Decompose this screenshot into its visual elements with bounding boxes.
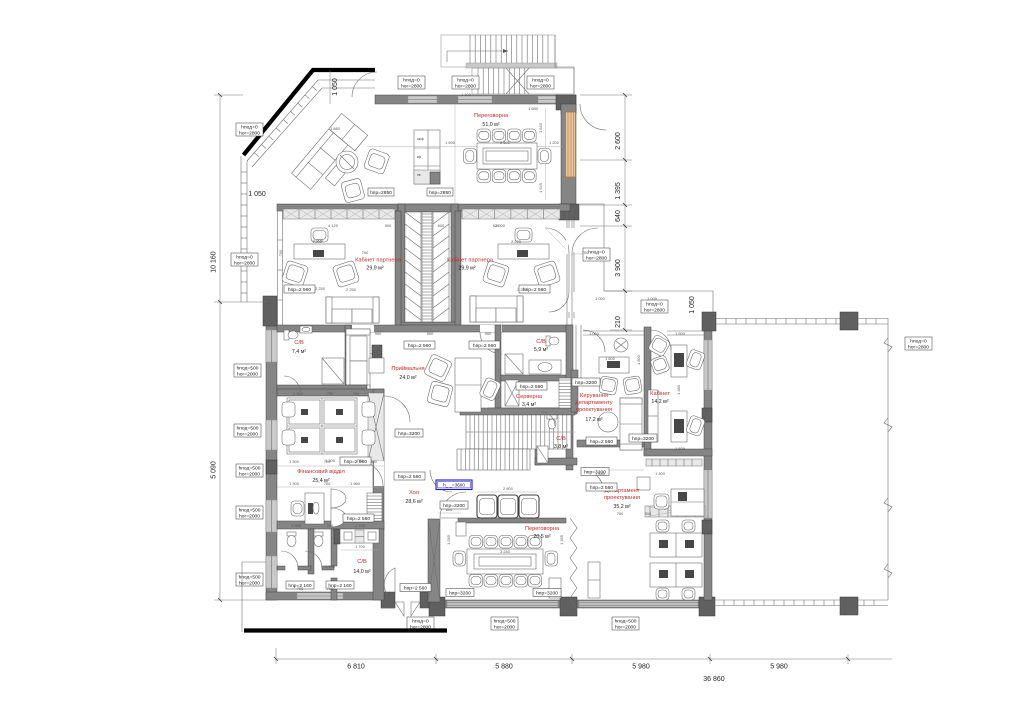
svg-text:кф: кф bbox=[417, 155, 421, 159]
svg-text:1 000: 1 000 bbox=[589, 331, 600, 336]
svg-text:hпод=500: hпод=500 bbox=[237, 426, 259, 432]
svg-text:Хол: Хол bbox=[409, 490, 419, 496]
svg-text:hпр=2 560: hпр=2 560 bbox=[344, 459, 367, 465]
svg-text:5 880: 5 880 bbox=[495, 664, 513, 671]
svg-text:2 250: 2 250 bbox=[315, 286, 326, 291]
svg-text:hпр=2 560: hпр=2 560 bbox=[473, 343, 496, 349]
svg-text:1 380: 1 380 bbox=[676, 384, 681, 395]
svg-text:700: 700 bbox=[617, 511, 624, 516]
svg-text:700: 700 bbox=[357, 458, 364, 463]
svg-text:hпод=0: hпод=0 bbox=[910, 339, 927, 345]
svg-text:1 200: 1 200 bbox=[312, 239, 323, 244]
svg-text:Фінансовий відділ: Фінансовий відділ bbox=[297, 468, 345, 475]
svg-text:700: 700 bbox=[362, 250, 369, 255]
svg-text:910: 910 bbox=[645, 511, 652, 516]
svg-text:1 395: 1 395 bbox=[615, 182, 622, 200]
svg-text:1 300: 1 300 bbox=[289, 459, 300, 464]
svg-text:hог=2000: hог=2000 bbox=[237, 431, 258, 437]
svg-text:Кабінет партнера: Кабінет партнера bbox=[355, 258, 402, 264]
svg-text:hог=2000: hог=2000 bbox=[615, 624, 636, 630]
svg-text:пв: пв bbox=[417, 173, 421, 177]
svg-text:7,4 м²: 7,4 м² bbox=[292, 349, 306, 355]
svg-text:1 285: 1 285 bbox=[559, 535, 564, 545]
svg-text:1 100: 1 100 bbox=[461, 92, 472, 97]
svg-text:1 300: 1 300 bbox=[325, 458, 336, 463]
svg-text:900: 900 bbox=[427, 331, 434, 336]
svg-text:36 860: 36 860 bbox=[703, 676, 725, 683]
svg-text:2 800: 2 800 bbox=[503, 486, 514, 491]
svg-text:hпр=2 560: hпр=2 560 bbox=[398, 474, 421, 480]
svg-text:hпр=3200: hпр=3200 bbox=[398, 431, 420, 437]
svg-text:hпр=2 560: hпр=2 560 bbox=[590, 485, 613, 491]
svg-text:2 250: 2 250 bbox=[517, 287, 528, 292]
svg-text:hпод=500: hпод=500 bbox=[494, 619, 516, 625]
svg-text:900: 900 bbox=[385, 223, 392, 228]
svg-text:hпод=0: hпод=0 bbox=[236, 255, 253, 261]
svg-text:3 900: 3 900 bbox=[615, 259, 622, 277]
svg-text:hпр=2 560: hпр=2 560 bbox=[288, 287, 311, 293]
svg-text:5,9 м²: 5,9 м² bbox=[534, 347, 548, 353]
svg-text:1 330: 1 330 bbox=[595, 471, 606, 476]
svg-text:hпр=3200: hпр=3200 bbox=[575, 380, 597, 386]
svg-text:14,0 м²: 14,0 м² bbox=[353, 569, 370, 575]
svg-text:5 980: 5 980 bbox=[770, 664, 788, 671]
svg-text:hпод=0: hпод=0 bbox=[412, 619, 429, 625]
svg-text:24,0 м²: 24,0 м² bbox=[399, 375, 416, 381]
svg-text:hог=2800: hог=2800 bbox=[239, 130, 260, 136]
svg-text:Кабінет: Кабінет bbox=[650, 391, 670, 397]
svg-text:1 005: 1 005 bbox=[647, 296, 657, 301]
svg-text:1 600: 1 600 bbox=[605, 356, 616, 361]
svg-text:hпр=3200: hпр=3200 bbox=[536, 590, 558, 596]
svg-text:1 690: 1 690 bbox=[445, 140, 456, 145]
svg-text:6 810: 6 810 bbox=[347, 664, 365, 671]
svg-text:С/В: С/В bbox=[357, 559, 367, 565]
svg-text:Серверна: Серверна bbox=[516, 394, 543, 400]
svg-text:14,2 м²: 14,2 м² bbox=[651, 399, 668, 405]
svg-text:проектування: проектування bbox=[576, 407, 612, 413]
svg-text:hог=2000: hог=2000 bbox=[239, 513, 260, 519]
svg-text:hпр=2 560: hпр=2 560 bbox=[404, 585, 427, 591]
svg-text:hог=2800: hог=2800 bbox=[586, 255, 607, 261]
svg-text:2 250: 2 250 bbox=[346, 287, 357, 292]
svg-text:51,0 м²: 51,0 м² bbox=[482, 122, 499, 128]
svg-text:28,6 м²: 28,6 м² bbox=[405, 499, 422, 505]
svg-text:1 400: 1 400 bbox=[655, 471, 666, 476]
svg-text:3,8 м²: 3,8 м² bbox=[554, 444, 568, 450]
svg-text:hпод=500: hпод=500 bbox=[239, 466, 261, 472]
svg-text:2 600: 2 600 bbox=[615, 132, 622, 150]
svg-text:1 700: 1 700 bbox=[325, 564, 336, 569]
svg-text:С/В: С/В bbox=[294, 340, 304, 346]
svg-text:hпр=3200: hпр=3200 bbox=[449, 590, 471, 596]
svg-text:Переговорна: Переговорна bbox=[474, 113, 509, 119]
svg-text:4 120: 4 120 bbox=[328, 223, 339, 228]
svg-text:hпод=500: hпод=500 bbox=[615, 619, 637, 625]
svg-text:hпр=2 560: hпр=2 560 bbox=[347, 516, 370, 522]
svg-text:5 090: 5 090 bbox=[211, 461, 218, 479]
svg-text:1 545: 1 545 bbox=[538, 183, 543, 193]
svg-text:700: 700 bbox=[327, 523, 334, 528]
svg-text:Керування: Керування bbox=[580, 393, 608, 399]
svg-text:Приймальня: Приймальня bbox=[391, 365, 424, 372]
svg-text:hпр=2850: hпр=2850 bbox=[429, 190, 451, 196]
svg-text:hпр=3200: hпр=3200 bbox=[632, 436, 654, 442]
svg-text:hог=2800: hог=2800 bbox=[234, 260, 255, 266]
svg-text:3,4 м²: 3,4 м² bbox=[522, 402, 536, 408]
svg-text:29,9 м²: 29,9 м² bbox=[458, 266, 475, 272]
svg-text:С/В: С/В bbox=[556, 436, 566, 442]
svg-text:600: 600 bbox=[438, 223, 445, 228]
svg-text:С/В: С/В bbox=[536, 339, 546, 345]
svg-text:hог=2800: hог=2800 bbox=[530, 83, 551, 89]
svg-text:hпр=3200: hпр=3200 bbox=[443, 503, 465, 509]
svg-text:1 700: 1 700 bbox=[355, 523, 366, 528]
svg-text:1 000: 1 000 bbox=[495, 223, 506, 228]
svg-text:900: 900 bbox=[375, 331, 382, 336]
svg-text:h_ _=3600: h_ _=3600 bbox=[443, 483, 465, 488]
svg-text:700: 700 bbox=[327, 391, 334, 396]
svg-text:700: 700 bbox=[353, 391, 360, 396]
svg-text:hпод=0: hпод=0 bbox=[241, 125, 258, 131]
svg-text:640: 640 bbox=[615, 210, 622, 222]
svg-text:1 200: 1 200 bbox=[549, 140, 560, 145]
svg-text:hпр=2 560: hпр=2 560 bbox=[590, 439, 613, 445]
svg-text:29,9 м²: 29,9 м² bbox=[366, 266, 383, 272]
svg-text:210: 210 bbox=[615, 316, 622, 328]
svg-text:hпод=0: hпод=0 bbox=[588, 250, 605, 256]
svg-text:3 240: 3 240 bbox=[500, 549, 511, 554]
svg-text:5 980: 5 980 bbox=[632, 664, 650, 671]
svg-text:1 300: 1 300 bbox=[291, 523, 302, 528]
svg-text:hпод=500: hпод=500 bbox=[239, 508, 261, 514]
svg-text:hпод=500: hпод=500 bbox=[237, 366, 259, 372]
svg-text:hпр=2 560: hпр=2 560 bbox=[520, 384, 543, 390]
svg-text:hог=2000: hог=2000 bbox=[239, 471, 260, 477]
svg-text:1 960: 1 960 bbox=[350, 481, 361, 486]
svg-text:1 680: 1 680 bbox=[528, 106, 539, 111]
svg-text:35,2 м²: 35,2 м² bbox=[613, 504, 630, 510]
svg-text:17,2 м²: 17,2 м² bbox=[585, 417, 602, 423]
svg-text:департаменту: департаменту bbox=[575, 400, 612, 406]
svg-text:1 300: 1 300 bbox=[289, 481, 300, 486]
svg-text:700: 700 bbox=[582, 250, 589, 255]
svg-text:hог=2800: hог=2800 bbox=[401, 83, 422, 89]
svg-text:20,5 м²: 20,5 м² bbox=[533, 534, 550, 540]
svg-text:hпод=0: hпод=0 bbox=[403, 78, 420, 84]
svg-text:hпод=0: hпод=0 bbox=[457, 78, 474, 84]
svg-text:1 880: 1 880 bbox=[330, 126, 341, 131]
svg-text:hог=2000: hог=2000 bbox=[494, 624, 515, 630]
svg-text:hог=2000: hог=2000 bbox=[237, 371, 258, 377]
svg-text:hпр=2850: hпр=2850 bbox=[370, 190, 392, 196]
svg-text:Переговорна: Переговорна bbox=[525, 526, 560, 532]
svg-text:1 050: 1 050 bbox=[332, 78, 339, 96]
svg-text:1 050: 1 050 bbox=[689, 296, 696, 314]
svg-text:hпод=0: hпод=0 bbox=[646, 302, 663, 308]
svg-text:1 000: 1 000 bbox=[595, 296, 606, 301]
svg-text:проектування: проектування bbox=[604, 495, 640, 501]
svg-text:1 700: 1 700 bbox=[355, 544, 366, 549]
svg-text:шкф: шкф bbox=[417, 137, 424, 141]
svg-text:1 500: 1 500 bbox=[675, 446, 686, 451]
svg-text:hпр=2 560: hпр=2 560 bbox=[408, 343, 431, 349]
svg-text:1 050: 1 050 bbox=[248, 191, 266, 198]
svg-text:1 285: 1 285 bbox=[446, 535, 451, 545]
svg-text:hог=2800: hог=2800 bbox=[908, 344, 929, 350]
svg-text:1 300: 1 300 bbox=[293, 391, 304, 396]
svg-text:hог=2800: hог=2800 bbox=[455, 83, 476, 89]
svg-text:700: 700 bbox=[297, 586, 304, 591]
svg-text:700: 700 bbox=[278, 249, 283, 256]
svg-text:25,4 м²: 25,4 м² bbox=[312, 478, 329, 484]
svg-text:hпод=0: hпод=0 bbox=[532, 78, 549, 84]
svg-text:1 640: 1 640 bbox=[538, 122, 543, 133]
svg-text:900: 900 bbox=[485, 331, 492, 336]
svg-text:700: 700 bbox=[327, 586, 334, 591]
svg-text:1 500: 1 500 bbox=[675, 331, 686, 336]
svg-text:1 800: 1 800 bbox=[636, 354, 641, 365]
svg-text:hог=2800: hог=2800 bbox=[644, 307, 665, 313]
svg-text:10 160: 10 160 bbox=[211, 251, 218, 273]
svg-text:2 220: 2 220 bbox=[511, 239, 522, 244]
svg-text:Кабінет партнера: Кабінет партнера bbox=[447, 258, 494, 264]
svg-text:2 600: 2 600 bbox=[500, 140, 511, 145]
